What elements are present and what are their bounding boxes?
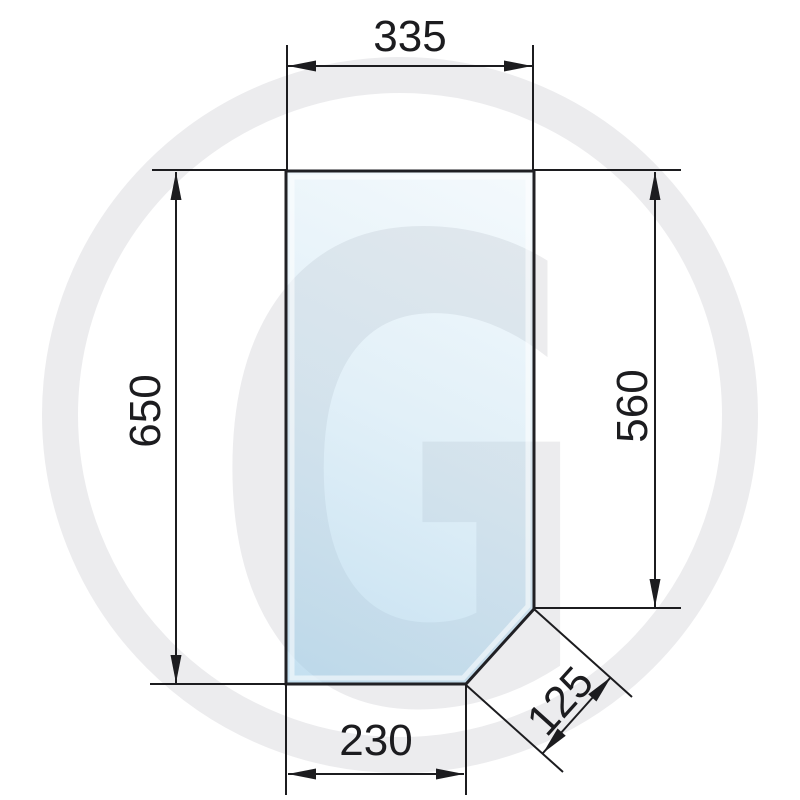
catalog-product-image: G 335 <box>0 0 800 800</box>
dimension-drawing-canvas: G 335 <box>0 0 800 800</box>
dimension-label-bottom-width: 230 <box>339 716 412 765</box>
dimension-label-right-height: 560 <box>608 369 657 442</box>
dimension-label-top-width: 335 <box>373 12 446 61</box>
dimension-label-left-height: 650 <box>121 374 170 447</box>
glass-pane <box>286 171 534 684</box>
